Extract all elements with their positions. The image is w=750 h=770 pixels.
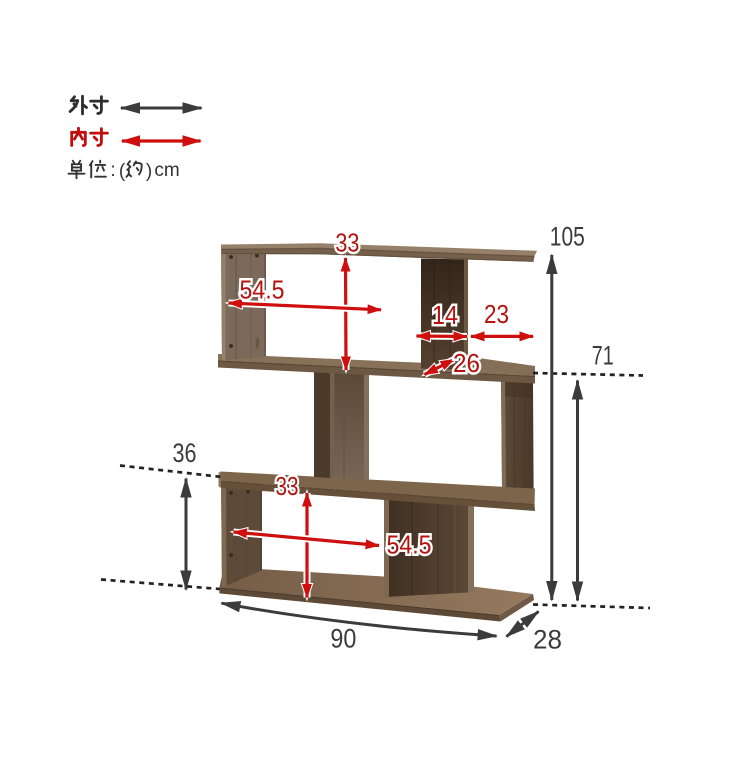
svg-text:23: 23 [484,299,509,329]
svg-text:26: 26 [453,348,480,378]
svg-text:33: 33 [335,228,359,258]
svg-text:33: 33 [276,471,299,501]
svg-text:54.5: 54.5 [387,530,432,560]
svg-text:54.5: 54.5 [240,274,285,304]
svg-text:): ) [146,161,152,182]
svg-text:28: 28 [533,625,562,655]
svg-text:cm: cm [154,160,179,181]
svg-text:(: ( [119,161,126,182]
svg-text:14: 14 [432,300,458,330]
svg-text:71: 71 [592,341,614,371]
svg-text::: : [110,160,115,181]
svg-text:36: 36 [173,438,197,468]
svg-text:105: 105 [550,222,585,252]
svg-text:90: 90 [330,624,356,654]
